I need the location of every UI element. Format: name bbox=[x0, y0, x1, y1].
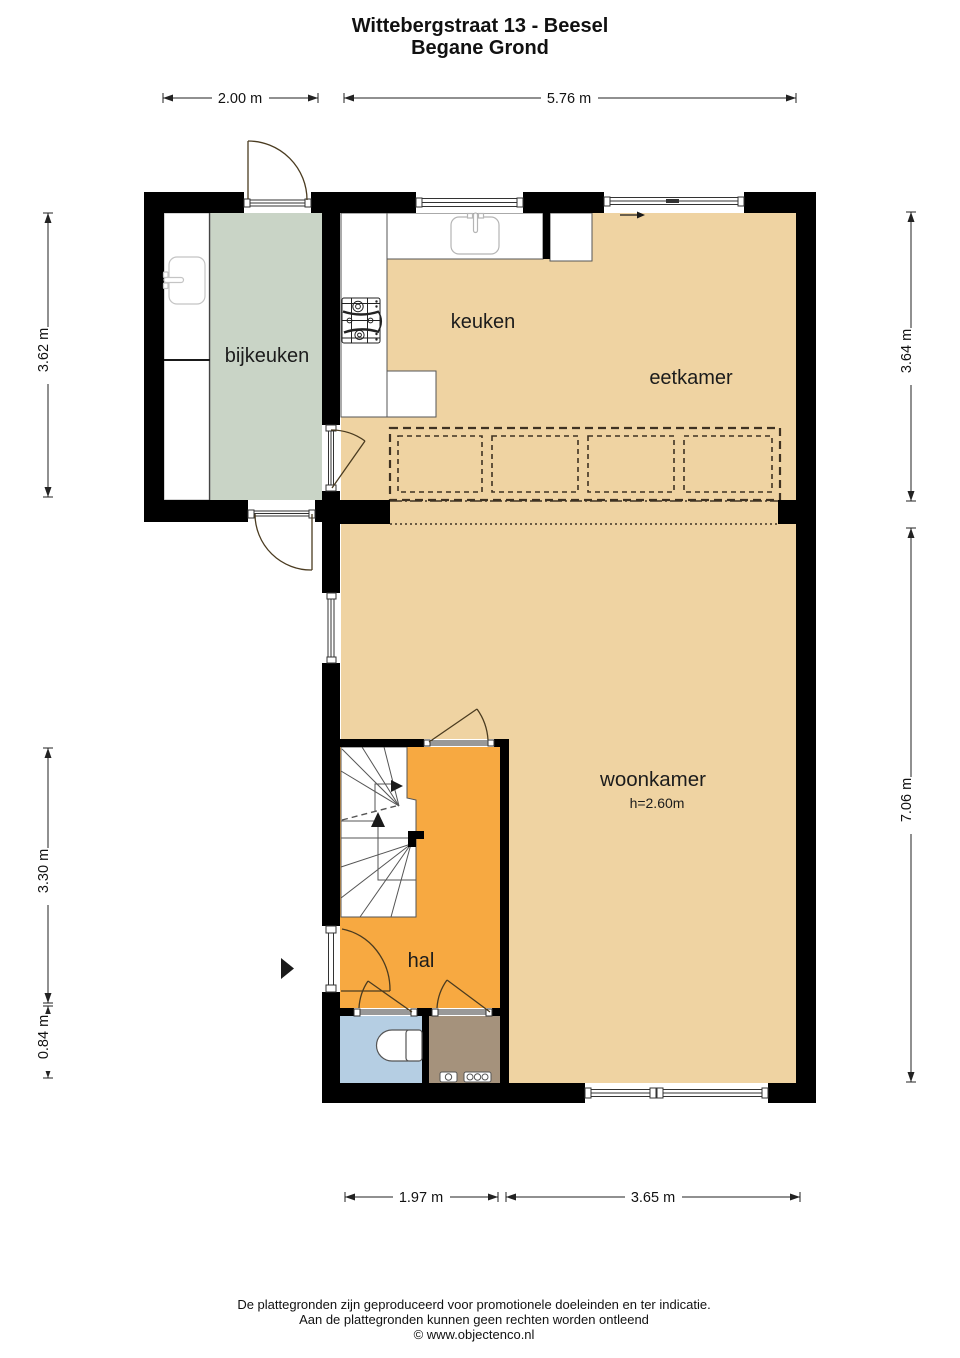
svg-text:hal: hal bbox=[408, 950, 435, 972]
svg-text:keuken: keuken bbox=[451, 311, 516, 333]
svg-text:3.64 m: 3.64 m bbox=[899, 329, 915, 373]
svg-text:0.84 m: 0.84 m bbox=[36, 1015, 52, 1059]
svg-text:bijkeuken: bijkeuken bbox=[225, 345, 310, 367]
svg-text:3.62 m: 3.62 m bbox=[36, 328, 52, 372]
svg-text:5.76 m: 5.76 m bbox=[547, 91, 591, 107]
svg-text:2.00 m: 2.00 m bbox=[218, 91, 262, 107]
svg-text:3.30 m: 3.30 m bbox=[36, 849, 52, 893]
svg-text:Begane Grond: Begane Grond bbox=[411, 37, 549, 59]
svg-text:eetkamer: eetkamer bbox=[649, 367, 733, 389]
svg-text:© www.objectenco.nl: © www.objectenco.nl bbox=[414, 1327, 535, 1342]
svg-text:3.65 m: 3.65 m bbox=[631, 1190, 675, 1206]
svg-text:1.97 m: 1.97 m bbox=[399, 1190, 443, 1206]
svg-text:Wittebergstraat 13 - Beesel: Wittebergstraat 13 - Beesel bbox=[352, 15, 609, 37]
svg-text:h=2.60m: h=2.60m bbox=[630, 795, 685, 811]
svg-text:7.06 m: 7.06 m bbox=[899, 778, 915, 822]
svg-text:woonkamer: woonkamer bbox=[599, 768, 706, 791]
svg-text:Aan de plattegronden kunnen ge: Aan de plattegronden kunnen geen rechten… bbox=[299, 1312, 649, 1327]
svg-text:De plattegronden zijn geproduc: De plattegronden zijn geproduceerd voor … bbox=[237, 1297, 710, 1312]
